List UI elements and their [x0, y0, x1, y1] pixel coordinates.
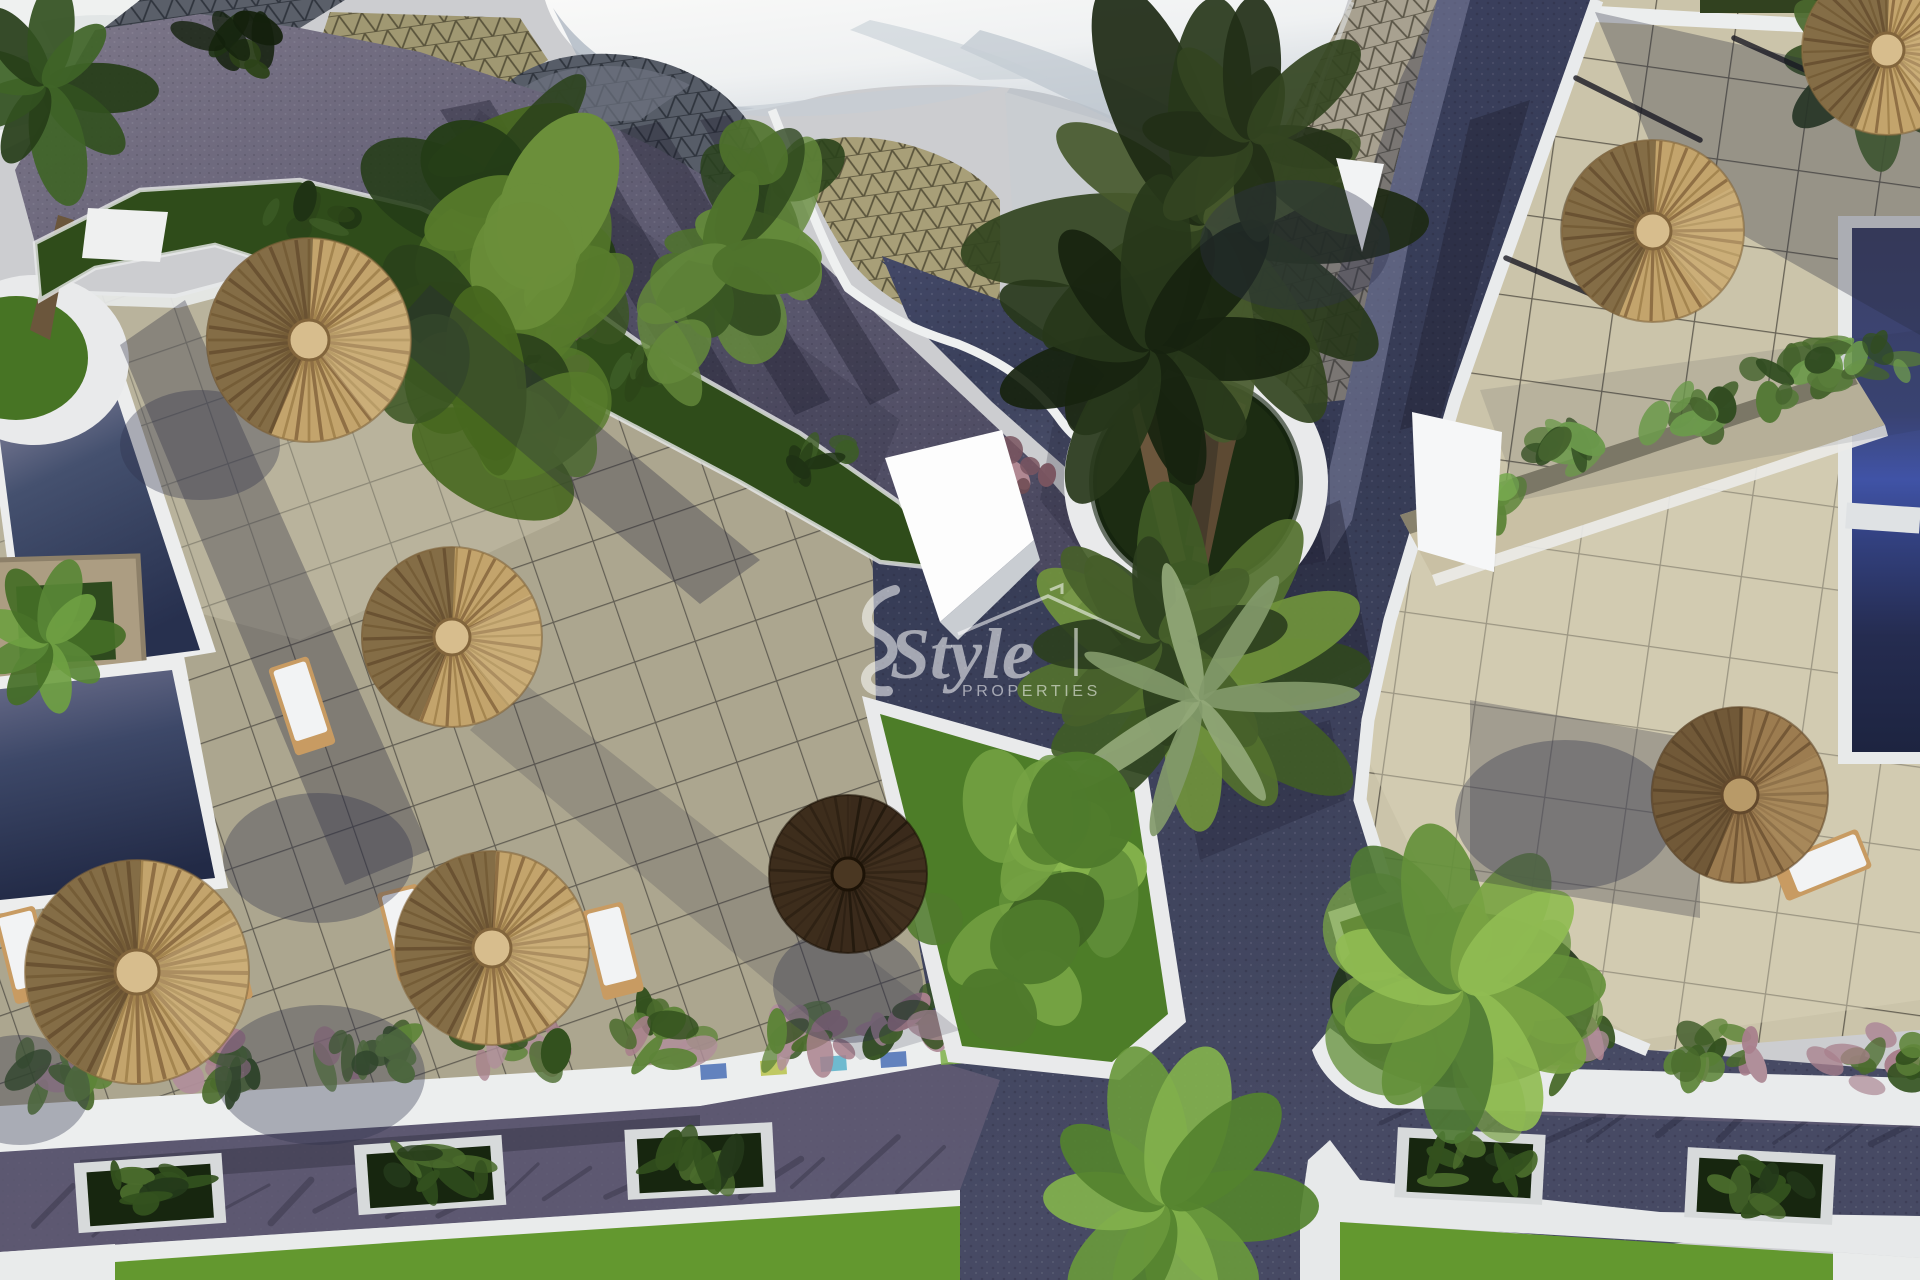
svg-text:Style: Style — [890, 614, 1034, 694]
svg-text:PROPERTIES: PROPERTIES — [962, 683, 1101, 700]
